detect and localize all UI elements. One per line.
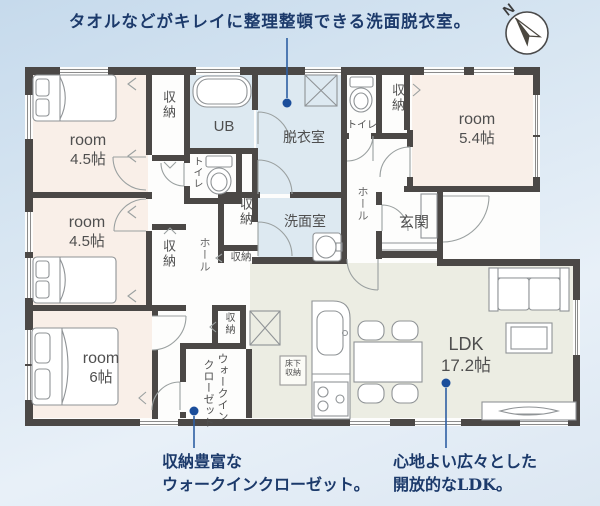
callout-dot-wic: [190, 407, 199, 416]
room1-size: 4.5帖: [43, 150, 133, 169]
room2-size: 5.4帖: [430, 129, 524, 148]
room4-label: room 6帖: [56, 349, 146, 387]
hall-right-label: ホール: [354, 186, 370, 230]
toilet-left-label: トイレ: [189, 156, 204, 198]
ldk-size: 17.2帖: [420, 355, 512, 376]
ldk-label: LDK 17.2帖: [420, 334, 512, 376]
storage2-label: 収納: [388, 83, 407, 129]
room4-size: 6帖: [56, 368, 146, 387]
room1-name: room: [43, 131, 133, 150]
annotation-bottom-left: 収納豊富な ウォークインクローゼット。: [162, 450, 370, 496]
washroom-label: 洗面室: [272, 211, 338, 231]
storage5-label: 収納: [225, 249, 257, 264]
annotation-bottom-right-line1: 心地よい広々とした: [393, 450, 537, 473]
room2-label: room 5.4帖: [430, 110, 524, 148]
callout-dot-dressing-room: [283, 99, 292, 108]
ub-label: UB: [205, 118, 243, 135]
annotation-top: タオルなどがキレイに整理整頓できる洗面脱衣室。: [30, 8, 510, 32]
coffee-table: [506, 323, 552, 353]
kitchen-counter: [312, 301, 350, 419]
underfloor-line2: 収納: [280, 368, 306, 377]
room1-label: room 4.5帖: [43, 131, 133, 169]
annotation-bottom-right: 心地よい広々とした 開放的なLDK。: [393, 450, 537, 496]
room2-name: room: [430, 110, 524, 129]
dressing-room-label: 脱衣室: [271, 127, 337, 147]
room3-label: room 4.5帖: [42, 213, 132, 251]
underfloor-storage-label: 床下 収納: [280, 359, 306, 377]
sofa: [489, 268, 569, 311]
ldk-name: LDK: [420, 334, 512, 355]
bed-room3: [33, 257, 116, 303]
callout-dot-ldk: [442, 379, 451, 388]
hall-center-label: ホール: [196, 237, 212, 279]
wic-label-line2: クローゼット: [200, 359, 216, 421]
floor-plan: N: [0, 0, 600, 506]
underfloor-line1: 床下: [280, 359, 306, 368]
storage3-label: 収納: [159, 239, 178, 287]
room3-size: 4.5帖: [42, 232, 132, 251]
wic-label-line1: ウォークイン: [214, 353, 230, 419]
room4-name: room: [56, 349, 146, 368]
bathtub: [193, 76, 251, 107]
entrance-label: 玄関: [390, 211, 438, 232]
toilet-right-label: トイレ: [346, 116, 378, 131]
annotation-bottom-left-line2: ウォークインクローゼット。: [162, 473, 370, 496]
toilet-left: [206, 156, 232, 194]
storage6-label: 収納: [221, 312, 236, 346]
vanity-sink: [313, 233, 342, 261]
room3-name: room: [42, 213, 132, 232]
storage4-label: 収納: [236, 197, 255, 245]
storage1-label: 収納: [159, 90, 178, 138]
annotation-bottom-left-line1: 収納豊富な: [162, 450, 370, 473]
tv-board: [482, 402, 576, 420]
annotation-bottom-right-line2: 開放的なLDK。: [393, 473, 537, 496]
bed-room1: [33, 75, 116, 121]
toilet-right: [350, 77, 373, 112]
floor-plan-page: N タオルなどがキレイに整理整頓できる洗面脱衣室。 収納豊富な ウォークインクロ…: [0, 0, 600, 506]
